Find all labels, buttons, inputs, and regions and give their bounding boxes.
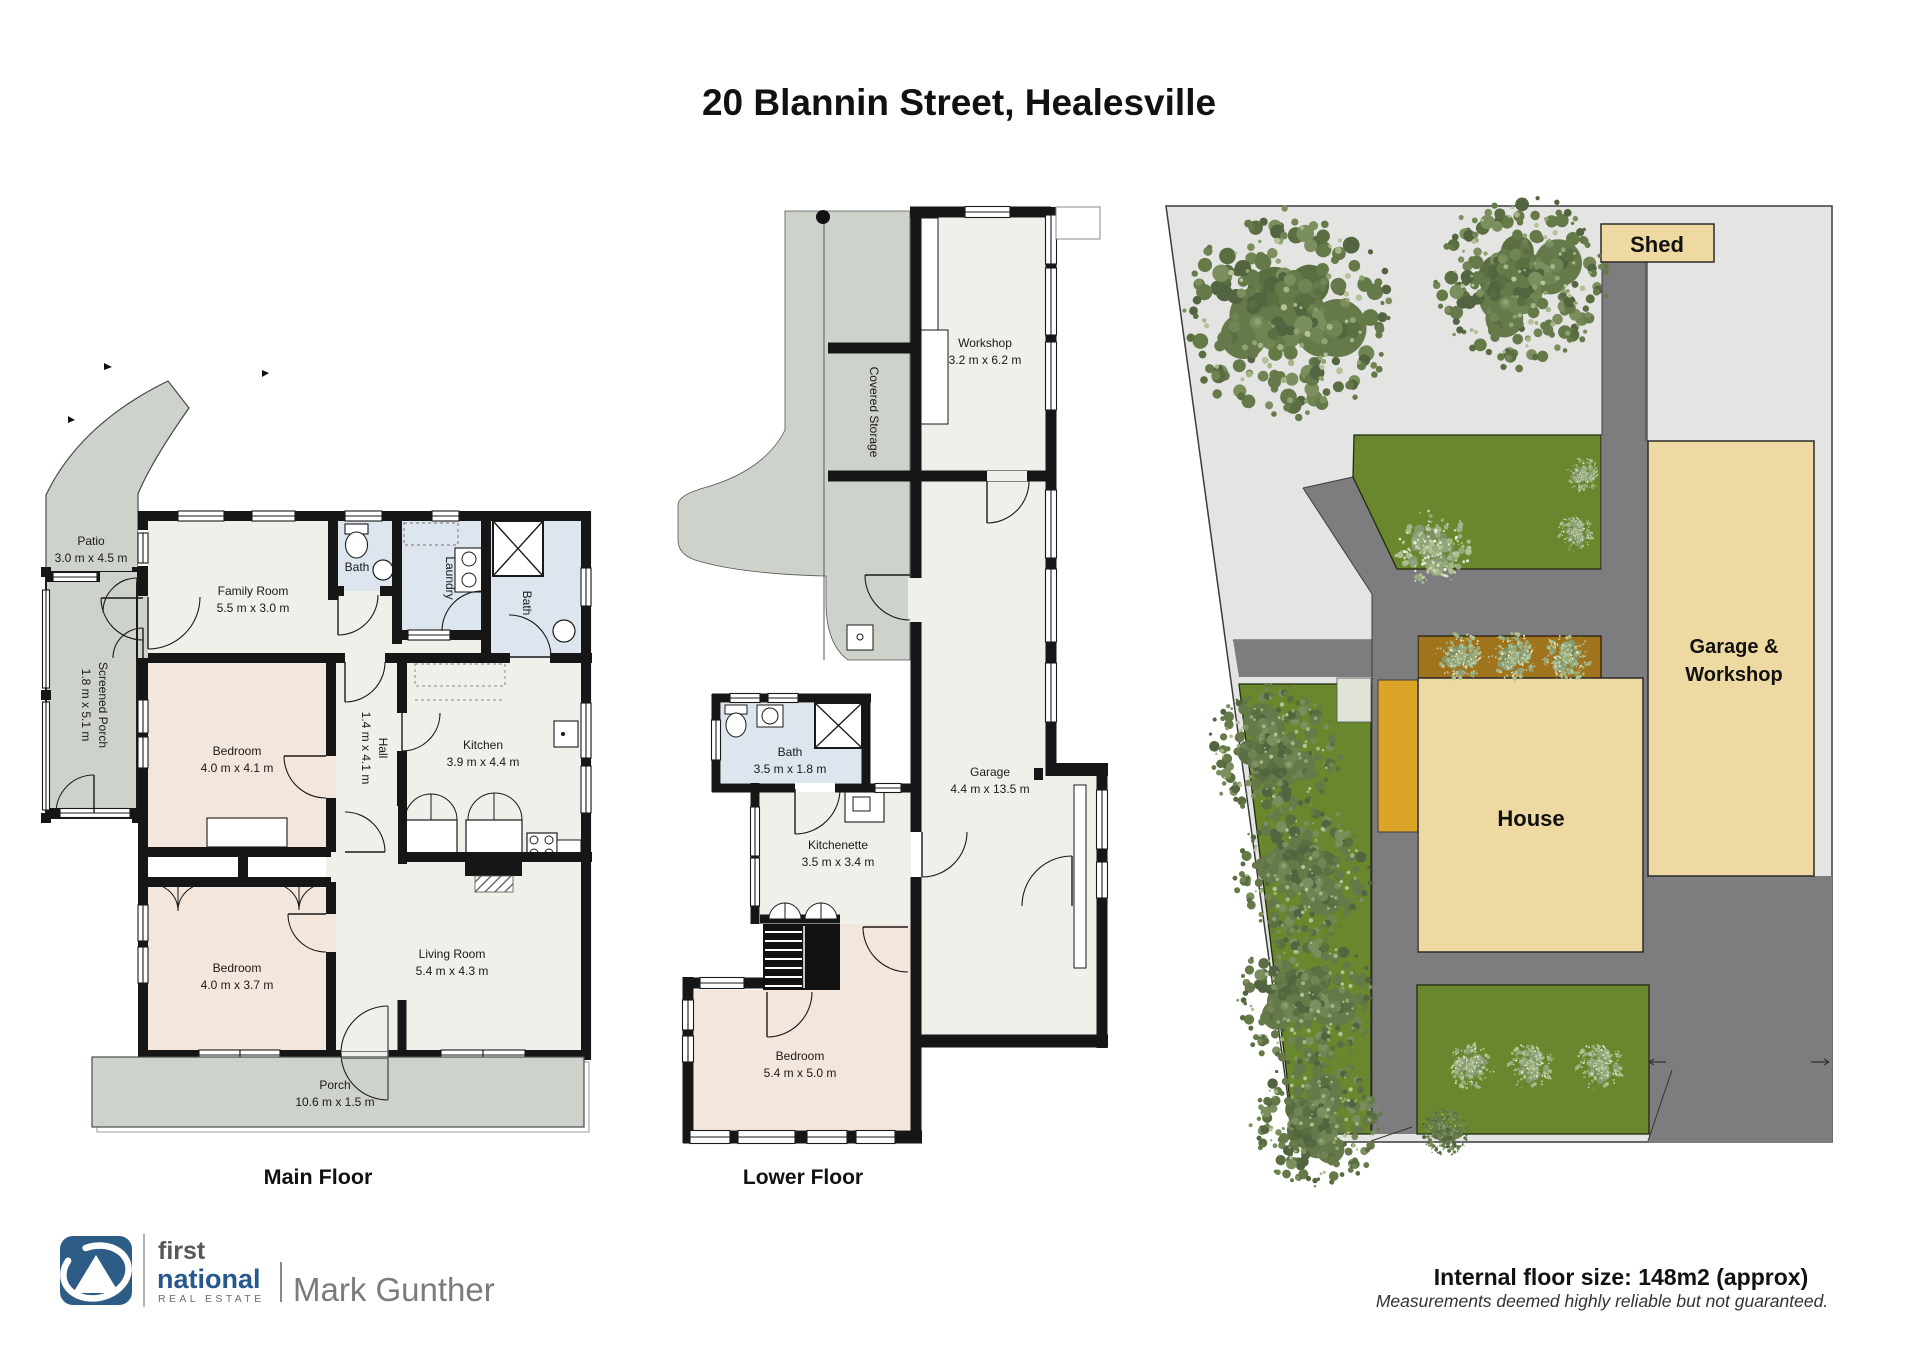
svg-text:Kitchenette: Kitchenette: [808, 838, 868, 852]
svg-text:Workshop: Workshop: [1685, 664, 1782, 686]
svg-text:1.4 m x 4.1 m: 1.4 m x 4.1 m: [359, 712, 373, 785]
svg-text:Workshop: Workshop: [958, 336, 1012, 350]
svg-text:Internal floor size: 148m2 (a: Internal floor size: 148m2 (approx): [1434, 1264, 1808, 1290]
svg-text:Living Room: Living Room: [419, 947, 486, 961]
svg-text:3.9 m x 4.4 m: 3.9 m x 4.4 m: [447, 755, 520, 769]
svg-text:REAL ESTATE: REAL ESTATE: [158, 1293, 265, 1305]
svg-text:5.4 m x 5.0 m: 5.4 m x 5.0 m: [764, 1066, 837, 1080]
svg-text:Garage: Garage: [970, 765, 1010, 779]
svg-text:4.4 m x 13.5 m: 4.4 m x 13.5 m: [950, 782, 1029, 796]
svg-text:first: first: [158, 1237, 206, 1265]
svg-text:5.5 m x 3.0 m: 5.5 m x 3.0 m: [217, 601, 290, 615]
svg-text:Patio: Patio: [77, 534, 105, 548]
svg-text:Kitchen: Kitchen: [463, 738, 503, 752]
svg-text:national: national: [157, 1264, 261, 1294]
svg-text:3.2 m x 6.2 m: 3.2 m x 6.2 m: [949, 353, 1022, 367]
svg-text:3.5 m x 3.4 m: 3.5 m x 3.4 m: [802, 855, 875, 869]
svg-text:Main Floor: Main Floor: [264, 1165, 373, 1189]
svg-text:10.6 m x 1.5 m: 10.6 m x 1.5 m: [295, 1095, 374, 1109]
svg-text:House: House: [1497, 806, 1564, 831]
svg-text:Mark Gunther: Mark Gunther: [293, 1271, 495, 1308]
svg-text:Bedroom: Bedroom: [213, 961, 262, 975]
svg-text:Bath: Bath: [520, 591, 534, 616]
svg-text:1.8 m x 5.1 m: 1.8 m x 5.1 m: [79, 669, 93, 742]
svg-text:Garage &: Garage &: [1690, 636, 1779, 658]
svg-text:Screened Porch: Screened Porch: [96, 662, 110, 748]
svg-text:Hall: Hall: [376, 738, 390, 759]
svg-text:Lower Floor: Lower Floor: [743, 1166, 863, 1189]
svg-text:20 Blannin Street, Healesville: 20 Blannin Street, Healesville: [702, 82, 1216, 123]
svg-text:Bath: Bath: [778, 745, 803, 759]
svg-text:3.0 m x 4.5 m: 3.0 m x 4.5 m: [55, 551, 128, 565]
svg-text:5.4 m x 4.3 m: 5.4 m x 4.3 m: [416, 964, 489, 978]
svg-text:Porch: Porch: [319, 1078, 350, 1092]
svg-text:Bedroom: Bedroom: [776, 1049, 825, 1063]
svg-text:4.0 m x 3.7 m: 4.0 m x 3.7 m: [201, 978, 274, 992]
svg-text:Bath: Bath: [345, 560, 370, 574]
svg-text:Bedroom: Bedroom: [213, 744, 262, 758]
svg-text:4.0 m x 4.1 m: 4.0 m x 4.1 m: [201, 761, 274, 775]
svg-text:3.5 m x 1.8 m: 3.5 m x 1.8 m: [754, 762, 827, 776]
svg-text:Shed: Shed: [1630, 232, 1684, 257]
svg-text:Covered Storage: Covered Storage: [867, 367, 881, 458]
svg-text:Family Room: Family Room: [218, 584, 289, 598]
svg-text:Measurements deemed highly rel: Measurements deemed highly reliable but …: [1376, 1291, 1828, 1311]
